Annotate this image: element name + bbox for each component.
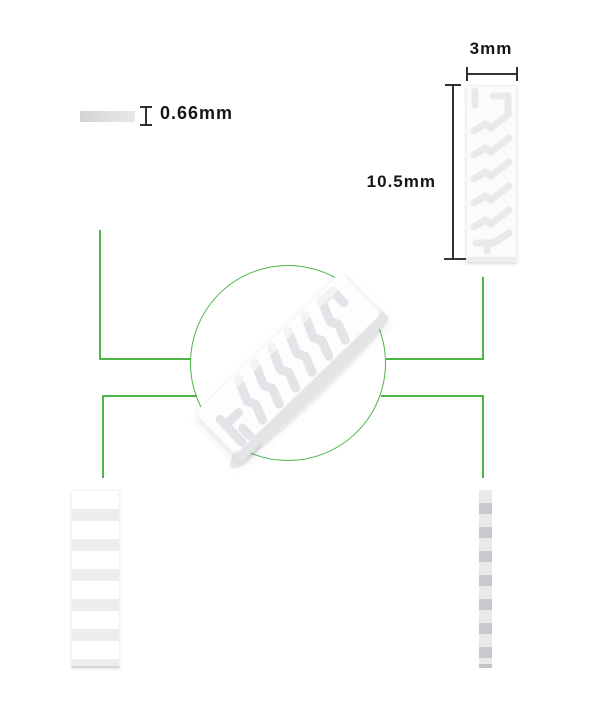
serpentine-trace-front-icon [466, 85, 517, 262]
front-view-component [466, 85, 517, 262]
height-label: 10.5mm [356, 172, 436, 192]
connector-left-bottom-vertical [102, 395, 104, 478]
side-view-strip [479, 490, 492, 668]
connector-left-top-horizontal [99, 358, 191, 360]
thickness-sample-bar [80, 111, 135, 122]
width-dimension-icon [464, 66, 520, 82]
connector-right-top-vertical [482, 277, 484, 360]
back-view-component [71, 490, 120, 668]
thickness-label: 0.66mm [160, 103, 233, 124]
ceramic-heater-3d-icon [180, 252, 398, 477]
connector-right-top-horizontal [386, 358, 484, 360]
product-dimension-diagram: 0.66mm 3mm 10.5mm [0, 0, 600, 725]
width-label: 3mm [462, 39, 520, 59]
connector-left-top-vertical [99, 230, 101, 360]
connector-right-bottom-vertical [482, 395, 484, 478]
thickness-dimension-icon [138, 105, 154, 127]
